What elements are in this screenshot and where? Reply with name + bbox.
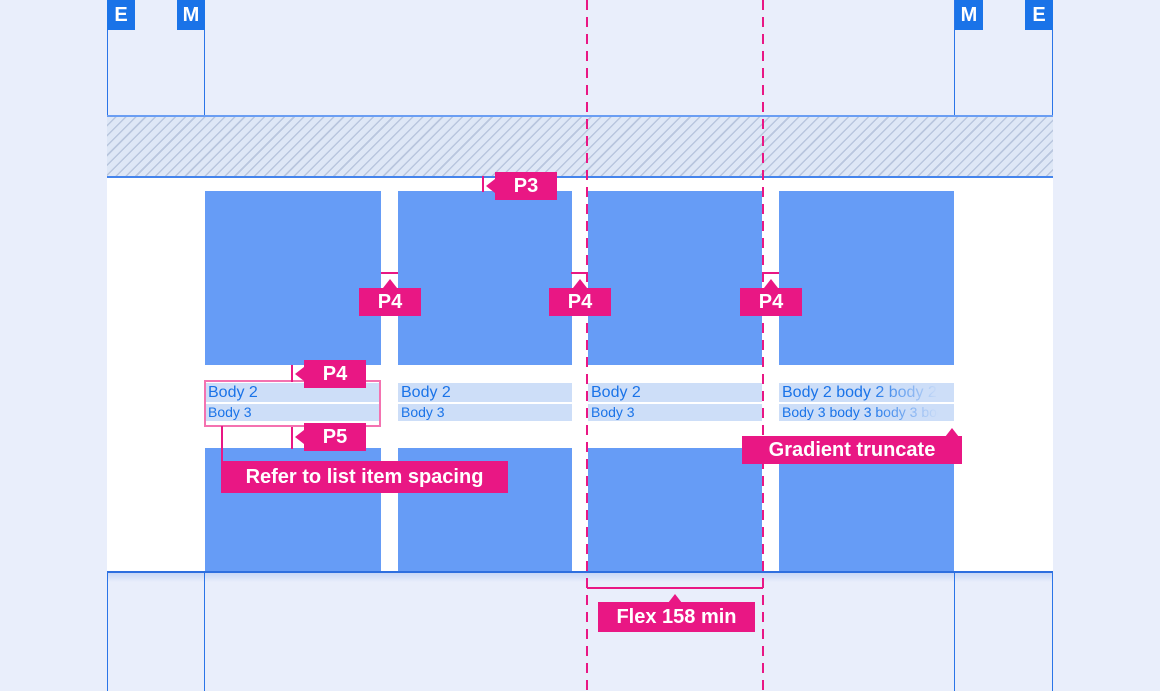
p4-arrow-icon [295,367,304,381]
p3-arrow-icon [486,179,495,193]
margin-marker-e-left: E [107,0,135,30]
card-subtitle-truncated: Body 3 body 3 body 3 body 3 [779,404,954,421]
p5-measure-tick [291,427,293,449]
p3-measure-tick [482,176,484,192]
p4-spacing-badge: P4 [304,360,366,388]
p4-arrow-icon [764,279,778,288]
gradient-truncate-note: Gradient truncate [742,436,962,464]
flex-width-bracket [587,587,763,589]
card-title: Body 2 [588,383,762,402]
card-image [205,191,381,365]
p4-gutter-line [381,272,398,274]
list-item-note-connector [221,426,223,462]
content-bottom-shadow [107,573,1053,582]
card-image [588,448,762,572]
p4-arrow-icon [573,279,587,288]
p5-spacing-badge: P5 [304,423,366,451]
p4-spacing-badge: P4 [359,288,421,316]
layout-spec-diagram: E M M E Body 2 Body 3 Body 2 Body 3 Body… [0,0,1160,691]
p4-arrow-icon [383,279,397,288]
list-item-spacing-note: Refer to list item spacing [221,461,508,493]
card-title: Body 2 [398,383,572,402]
p4-gutter-line [571,272,588,274]
p4-spacing-badge: P4 [740,288,802,316]
p3-spacing-badge: P3 [495,172,557,200]
p5-arrow-icon [295,430,304,444]
p4-gutter-line [762,272,779,274]
card-image [779,448,954,572]
gradient-fade-overlay [870,383,954,402]
margin-marker-m-right: M [955,0,983,30]
margin-marker-m-left: M [177,0,205,30]
app-bar-hatch-band [107,115,1053,178]
card-image [398,191,572,365]
p4-measure-tick [291,365,293,382]
p4-spacing-badge: P4 [549,288,611,316]
card-subtitle: Body 3 [398,404,572,421]
card-image [588,191,762,365]
gradient-fade-overlay [870,404,954,421]
card-image [779,191,954,365]
card-subtitle: Body 3 [588,404,762,421]
card-title-truncated: Body 2 body 2 body 2 body 2 [779,383,954,402]
margin-marker-e-right: E [1025,0,1053,30]
flex-min-width-note: Flex 158 min [598,602,755,632]
